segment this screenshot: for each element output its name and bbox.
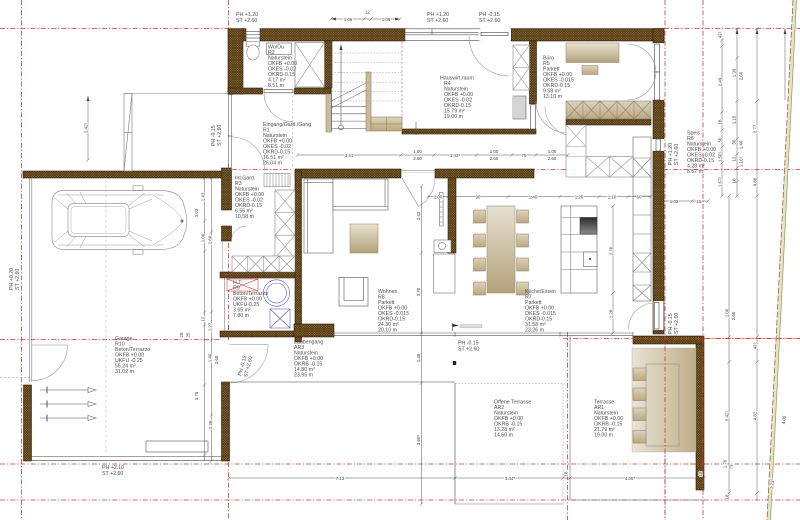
svg-text:18: 18	[564, 471, 569, 476]
svg-text:31.02 m: 31.02 m	[115, 369, 135, 375]
svg-text:2.60: 2.60	[731, 311, 736, 320]
svg-text:2.60: 2.60	[214, 355, 219, 364]
svg-text:2.70: 2.70	[416, 287, 421, 296]
svg-text:1.02: 1.02	[670, 199, 679, 204]
svg-text:7.80 m: 7.80 m	[233, 313, 250, 319]
svg-text:13.10 m: 13.10 m	[543, 94, 563, 100]
svg-text:9.80: 9.80	[753, 177, 758, 186]
svg-text:ST +2.60: ST +2.60	[479, 18, 500, 24]
svg-text:25: 25	[179, 332, 184, 337]
svg-text:4.00: 4.00	[781, 415, 787, 425]
svg-text:90: 90	[476, 194, 481, 199]
svg-text:ST +2.60: ST +2.60	[458, 347, 479, 353]
svg-text:1.40: 1.40	[529, 194, 538, 199]
svg-text:2.70: 2.70	[609, 246, 614, 255]
svg-text:1.40: 1.40	[208, 353, 213, 362]
svg-text:26.04 m: 26.04 m	[263, 161, 283, 167]
svg-text:1.43: 1.43	[201, 192, 206, 201]
svg-text:1.28: 1.28	[609, 309, 614, 318]
svg-text:18: 18	[718, 119, 723, 124]
svg-text:3.03: 3.03	[194, 208, 199, 217]
svg-text:12: 12	[732, 156, 737, 161]
svg-text:8.57 m: 8.57 m	[687, 169, 704, 175]
svg-text:50: 50	[732, 139, 737, 144]
svg-text:1.00: 1.00	[434, 194, 443, 199]
svg-text:1.00: 1.00	[548, 149, 557, 154]
svg-text:1.15: 1.15	[732, 115, 737, 124]
svg-text:50: 50	[718, 137, 723, 142]
svg-text:2.42: 2.42	[416, 211, 421, 220]
svg-text:2.60: 2.60	[548, 156, 557, 161]
svg-text:1.40: 1.40	[416, 353, 421, 362]
svg-text:ST +2.60: ST +2.60	[15, 269, 21, 290]
svg-text:2.77: 2.77	[753, 124, 758, 133]
svg-text:18: 18	[725, 494, 730, 499]
svg-text:79: 79	[729, 464, 734, 469]
svg-text:2.60: 2.60	[208, 235, 213, 244]
svg-text:1.00: 1.00	[725, 308, 730, 317]
svg-text:23.26 m: 23.26 m	[525, 328, 545, 334]
svg-text:75: 75	[522, 153, 527, 158]
svg-text:1.00: 1.00	[490, 149, 499, 154]
svg-text:ST +2.60: ST +2.60	[674, 144, 680, 165]
svg-text:10.58 m: 10.58 m	[235, 214, 255, 220]
svg-text:12: 12	[201, 316, 206, 321]
svg-text:4.82: 4.82	[753, 411, 758, 420]
svg-text:ST +2.60: ST +2.60	[217, 125, 223, 146]
svg-text:3.41: 3.41	[345, 153, 354, 158]
svg-text:19.00 m: 19.00 m	[594, 433, 614, 439]
svg-text:12: 12	[365, 10, 370, 15]
svg-text:15: 15	[697, 199, 702, 204]
svg-text:2.49: 2.49	[718, 77, 723, 86]
svg-text:2.60: 2.60	[739, 71, 744, 80]
svg-text:8.51 m: 8.51 m	[268, 83, 285, 89]
svg-text:1.99: 1.99	[732, 68, 737, 77]
svg-text:Eingang/Gard./Gang: Eingang/Gard./Gang	[263, 122, 311, 128]
svg-text:25: 25	[186, 332, 191, 337]
svg-text:ST +2.60: ST +2.60	[674, 313, 680, 334]
svg-text:ST +2.60: ST +2.60	[102, 471, 123, 477]
svg-text:1.00: 1.00	[201, 233, 206, 242]
svg-text:1.76: 1.76	[723, 459, 728, 468]
svg-text:1.20: 1.20	[575, 194, 584, 199]
svg-text:3.75: 3.75	[194, 391, 199, 400]
svg-text:23.95 m: 23.95 m	[294, 373, 314, 379]
svg-text:20.10 m: 20.10 m	[378, 328, 398, 334]
svg-text:2.60: 2.60	[413, 156, 422, 161]
svg-text:18: 18	[732, 178, 737, 183]
svg-text:1.27: 1.27	[208, 322, 213, 331]
svg-text:7.13: 7.13	[336, 476, 345, 481]
svg-text:18: 18	[698, 471, 703, 476]
svg-text:19.00 m: 19.00 m	[444, 114, 464, 120]
svg-text:1.00: 1.00	[413, 149, 422, 154]
svg-text:1.40: 1.40	[739, 140, 744, 149]
svg-text:1.06: 1.06	[382, 17, 391, 22]
svg-text:60: 60	[637, 194, 642, 199]
svg-text:2.35: 2.35	[208, 420, 213, 429]
svg-text:ST +2.60: ST +2.60	[236, 18, 257, 24]
svg-text:1.10: 1.10	[608, 194, 617, 199]
svg-text:14.60 m: 14.60 m	[494, 433, 514, 439]
svg-text:ST +2.60: ST +2.60	[427, 18, 448, 24]
svg-text:1.06: 1.06	[344, 17, 353, 22]
svg-text:2.60: 2.60	[490, 156, 499, 161]
